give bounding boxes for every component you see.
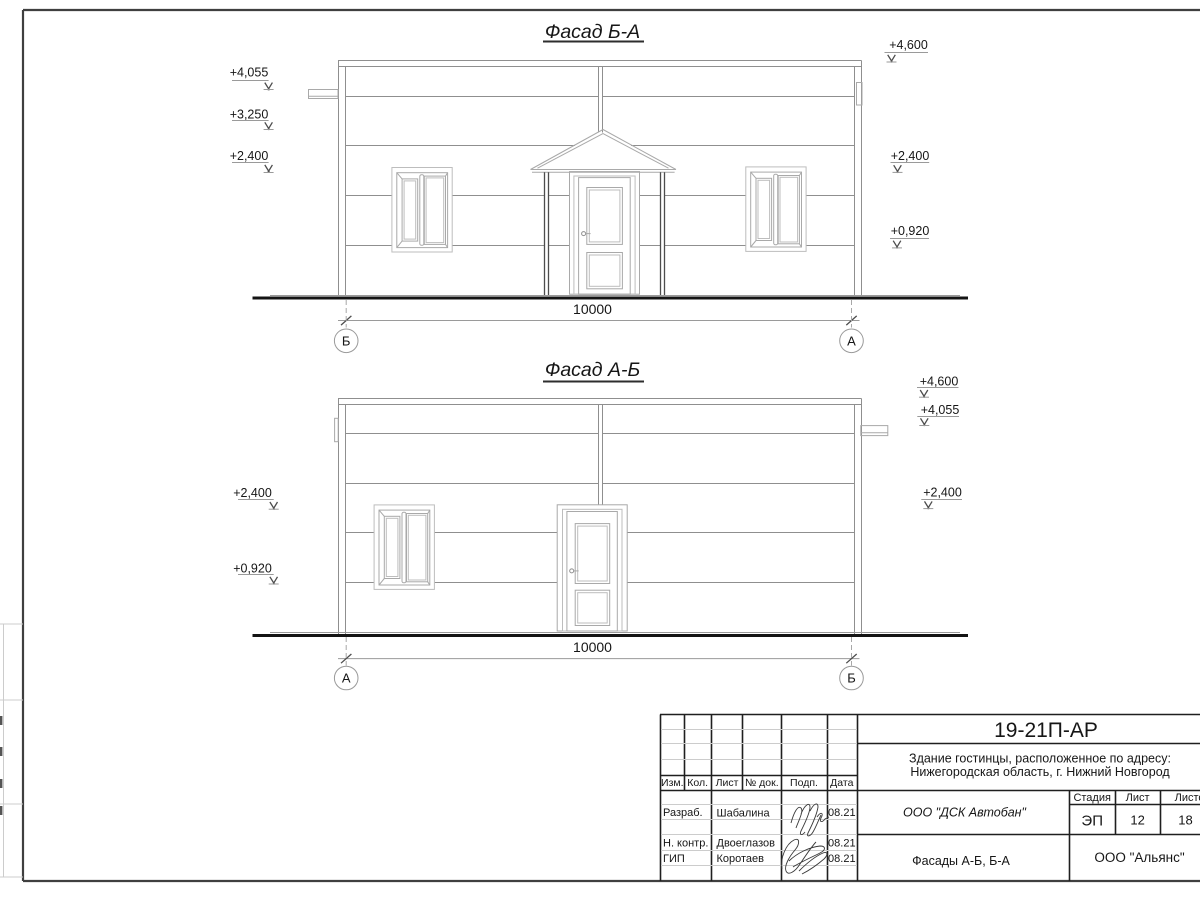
svg-text:Стадия: Стадия	[1073, 792, 1111, 804]
svg-text:+2,400: +2,400	[230, 149, 269, 163]
svg-text:08.21: 08.21	[828, 838, 856, 850]
svg-text:08.21: 08.21	[828, 853, 856, 865]
svg-text:Лист: Лист	[1126, 792, 1150, 804]
svg-text:Фасад А-Б: Фасад А-Б	[545, 359, 641, 381]
svg-text:10000: 10000	[573, 639, 612, 655]
svg-text:18: 18	[1178, 813, 1192, 828]
svg-text:ЭП: ЭП	[1081, 812, 1103, 829]
svg-text:Изм.: Изм.	[661, 777, 684, 789]
svg-text:А: А	[847, 333, 856, 348]
svg-text:08.21: 08.21	[828, 807, 856, 819]
svg-text:Двоеглазов: Двоеглазов	[717, 838, 776, 850]
svg-text:19-21П-АР: 19-21П-АР	[994, 719, 1098, 742]
svg-text:Б: Б	[342, 333, 351, 348]
svg-text:+0,920: +0,920	[891, 224, 930, 238]
svg-text:+2,400: +2,400	[233, 486, 272, 500]
svg-text:ООО "Альянс": ООО "Альянс"	[1094, 850, 1184, 865]
svg-text:+4,055: +4,055	[921, 403, 960, 417]
svg-text:Разраб.: Разраб.	[663, 807, 703, 819]
svg-text:Лист: Лист	[716, 777, 739, 789]
svg-text:10000: 10000	[573, 301, 612, 317]
svg-text:№ док.: № док.	[745, 777, 779, 789]
svg-text:Шабалина: Шабалина	[717, 807, 771, 819]
svg-text:+2,400: +2,400	[923, 486, 962, 500]
svg-text:+0,920: +0,920	[233, 561, 272, 575]
svg-text:ГИП: ГИП	[663, 853, 685, 865]
svg-text:Нижегородская область, г. Нижн: Нижегородская область, г. Нижний Новгоро…	[910, 765, 1170, 779]
svg-text:Фасады А-Б, Б-А: Фасады А-Б, Б-А	[912, 854, 1010, 868]
svg-text:Дата: Дата	[830, 777, 853, 789]
svg-text:+4,055: +4,055	[230, 65, 269, 79]
svg-text:Б: Б	[847, 671, 856, 686]
svg-text:ООО "ДСК Автобан": ООО "ДСК Автобан"	[903, 806, 1027, 820]
svg-text:+2,400: +2,400	[891, 149, 930, 163]
svg-text:Кол.: Кол.	[687, 777, 708, 789]
svg-text:+4,600: +4,600	[889, 38, 928, 52]
svg-text:Коротаев: Коротаев	[717, 853, 765, 865]
svg-text:Н. контр.: Н. контр.	[663, 838, 708, 850]
svg-text:+3,250: +3,250	[230, 107, 269, 121]
svg-text:+4,600: +4,600	[920, 375, 959, 389]
svg-text:Подп.: Подп.	[790, 777, 818, 789]
svg-text:Листов: Листов	[1175, 792, 1200, 804]
svg-text:12: 12	[1130, 813, 1144, 828]
svg-text:Здание гостинцы, расположенное: Здание гостинцы, расположенное по адресу…	[909, 751, 1171, 765]
svg-text:Фасад Б-А: Фасад Б-А	[545, 21, 640, 43]
svg-text:А: А	[342, 671, 351, 686]
